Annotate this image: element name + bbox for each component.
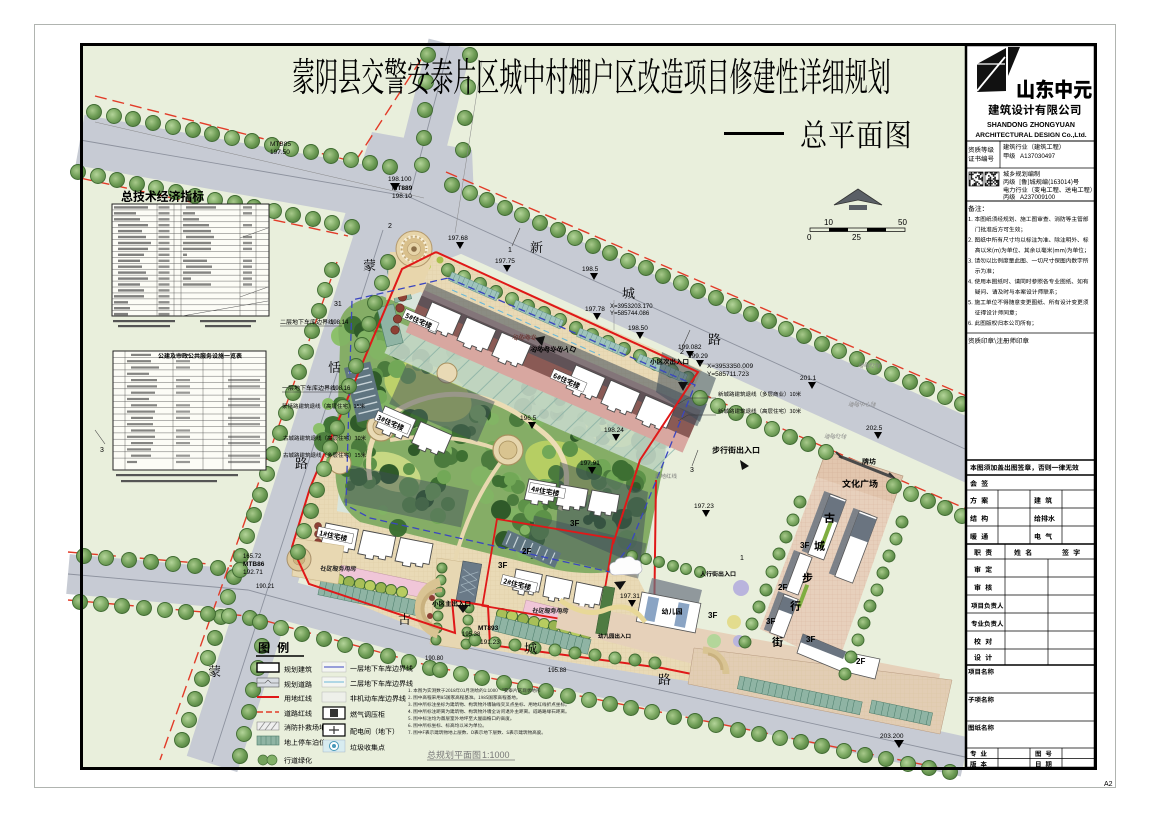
svg-text:3: 3 [100, 447, 104, 454]
svg-text:31: 31 [334, 301, 342, 308]
svg-text:A137030497: A137030497 [1020, 153, 1056, 160]
svg-text:MT893: MT893 [478, 625, 499, 632]
svg-text:198.14: 198.14 [330, 320, 349, 326]
svg-text:3F: 3F [800, 541, 809, 550]
svg-text:SHANDONG ZHONGYUAN: SHANDONG ZHONGYUAN [987, 122, 1075, 129]
svg-text:192.71: 192.71 [243, 569, 263, 576]
svg-text:198.16: 198.16 [332, 386, 351, 392]
svg-text:A237009100: A237009100 [1020, 194, 1056, 201]
svg-text:190.80: 190.80 [425, 656, 444, 662]
svg-text:197.68: 197.68 [448, 235, 468, 242]
svg-text:195.88: 195.88 [548, 668, 567, 674]
svg-text:197.78: 197.78 [585, 306, 605, 313]
svg-text:50: 50 [898, 218, 907, 227]
svg-text:A2: A2 [1104, 781, 1113, 788]
svg-text:Y=585711.723: Y=585711.723 [707, 371, 749, 378]
svg-text:198.24: 198.24 [604, 427, 624, 434]
svg-text:2F: 2F [856, 657, 865, 666]
svg-text:197.31: 197.31 [620, 593, 640, 600]
svg-text:2: 2 [680, 349, 684, 356]
svg-text:197.75: 197.75 [495, 258, 515, 265]
svg-text:ARCHITECTURAL DESIGN Co.,Ltd.: ARCHITECTURAL DESIGN Co.,Ltd. [975, 132, 1086, 139]
svg-text:198.50: 198.50 [628, 325, 648, 332]
svg-text:198.100: 198.100 [388, 176, 412, 183]
svg-text:2F: 2F [778, 583, 787, 592]
svg-text:3F: 3F [806, 635, 815, 644]
svg-text:195.38: 195.38 [462, 632, 481, 638]
svg-text:25: 25 [852, 233, 861, 242]
svg-text:165.72: 165.72 [243, 554, 262, 560]
svg-text:198.10: 198.10 [392, 193, 412, 200]
svg-text:198.5: 198.5 [582, 266, 599, 273]
svg-text:MTB86: MTB86 [243, 561, 265, 568]
svg-text:2F: 2F [522, 547, 531, 556]
svg-text:1: 1 [508, 247, 512, 254]
svg-text:203.200: 203.200 [880, 733, 904, 740]
svg-text:1: 1 [740, 555, 744, 562]
svg-text:196.5: 196.5 [520, 415, 537, 422]
svg-text:0: 0 [807, 233, 812, 242]
svg-text:Y=585744.086: Y=585744.086 [610, 311, 650, 317]
svg-text:191.23: 191.23 [480, 639, 500, 646]
svg-text:X=3953203.170: X=3953203.170 [610, 304, 653, 310]
svg-text:197.50: 197.50 [270, 149, 290, 156]
svg-text:3F: 3F [570, 519, 579, 528]
svg-text:197.91: 197.91 [580, 460, 600, 467]
svg-text:199.29: 199.29 [688, 353, 708, 360]
svg-text:3F: 3F [708, 611, 717, 620]
svg-text:2: 2 [388, 223, 392, 230]
svg-text:MTB85: MTB85 [270, 141, 291, 148]
svg-text:197.23: 197.23 [694, 503, 714, 510]
svg-text:202.5: 202.5 [866, 425, 883, 432]
svg-text:10: 10 [824, 218, 833, 227]
svg-text:3F: 3F [766, 617, 775, 626]
svg-text:1:1000: 1:1000 [482, 750, 510, 760]
svg-text:190.21: 190.21 [256, 584, 275, 590]
svg-text:MT889: MT889 [392, 185, 413, 192]
svg-text:3: 3 [690, 467, 694, 474]
svg-text:201.1: 201.1 [800, 375, 817, 382]
svg-text:3F: 3F [498, 561, 507, 570]
